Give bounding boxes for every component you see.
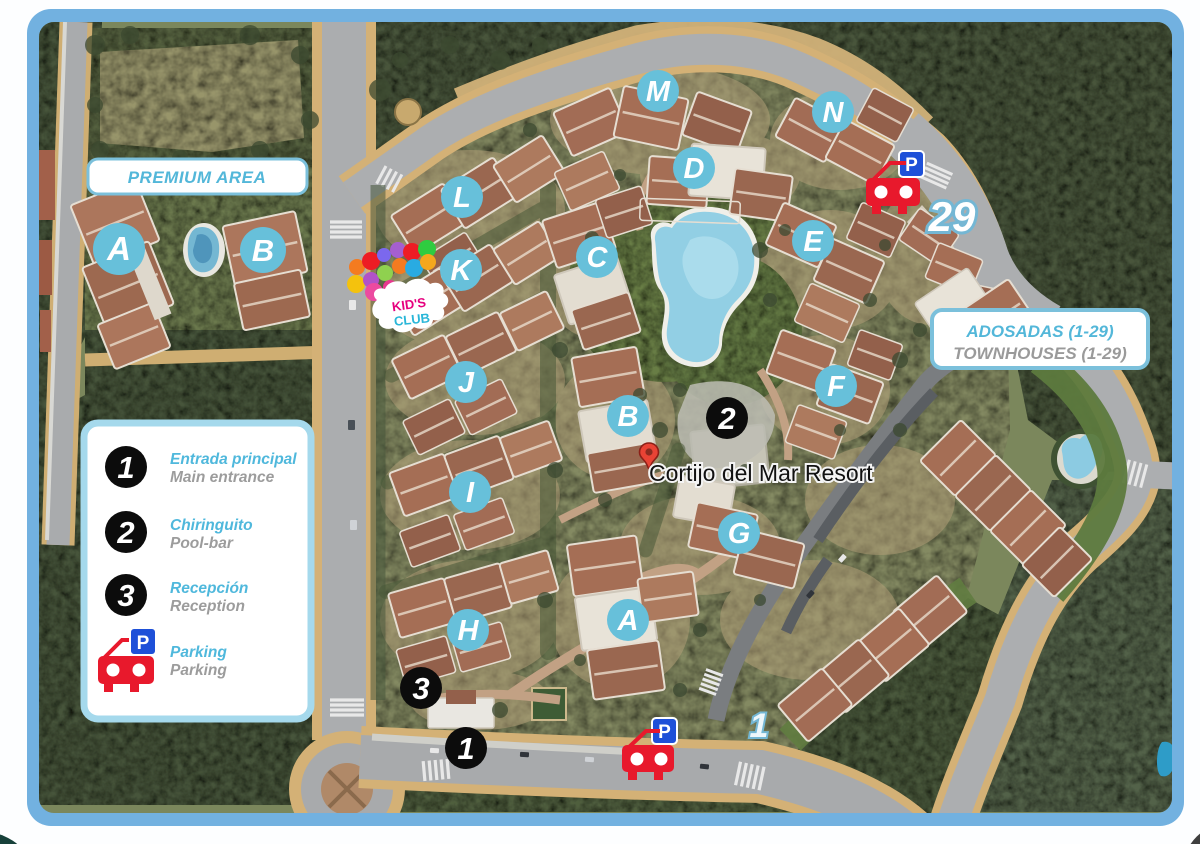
svg-text:B: B [252,233,274,268]
svg-text:P: P [905,155,918,176]
svg-text:L: L [453,182,471,214]
svg-text:C: C [587,242,609,274]
svg-text:ADOSADAS (1-29): ADOSADAS (1-29) [965,322,1114,341]
svg-text:TOWNHOUSES (1-29): TOWNHOUSES (1-29) [953,344,1127,363]
svg-text:1: 1 [117,450,134,485]
svg-text:P: P [137,633,150,654]
svg-text:29: 29 [928,193,976,240]
svg-text:Pool-bar: Pool-bar [170,535,234,552]
svg-text:PREMIUM AREA: PREMIUM AREA [128,168,267,187]
svg-text:G: G [728,518,751,550]
svg-text:Recepción: Recepción [170,580,248,597]
svg-text:I: I [466,477,475,509]
svg-text:M: M [646,76,671,108]
svg-text:F: F [827,371,846,403]
svg-text:P: P [658,722,671,743]
svg-text:J: J [458,367,475,399]
svg-text:E: E [803,226,824,258]
svg-text:Cortijo del Mar Resort: Cortijo del Mar Resort [649,460,873,486]
svg-text:2: 2 [717,401,735,436]
svg-text:3: 3 [117,578,134,613]
svg-text:Entrada principal: Entrada principal [170,451,297,468]
svg-text:N: N [823,97,845,129]
svg-text:Parking: Parking [170,644,227,661]
svg-text:A: A [106,230,131,267]
svg-text:H: H [458,615,480,647]
svg-text:A: A [617,605,639,637]
svg-text:K: K [451,255,474,287]
svg-text:Main entrance: Main entrance [170,469,275,486]
svg-text:Chiringuito: Chiringuito [170,517,253,534]
svg-text:3: 3 [412,671,429,706]
svg-text:1: 1 [457,731,474,766]
svg-text:1: 1 [750,707,769,745]
svg-text:B: B [618,401,639,433]
svg-text:D: D [684,153,705,185]
svg-text:Reception: Reception [170,598,245,615]
svg-text:Parking: Parking [170,662,227,679]
svg-text:2: 2 [116,515,134,550]
